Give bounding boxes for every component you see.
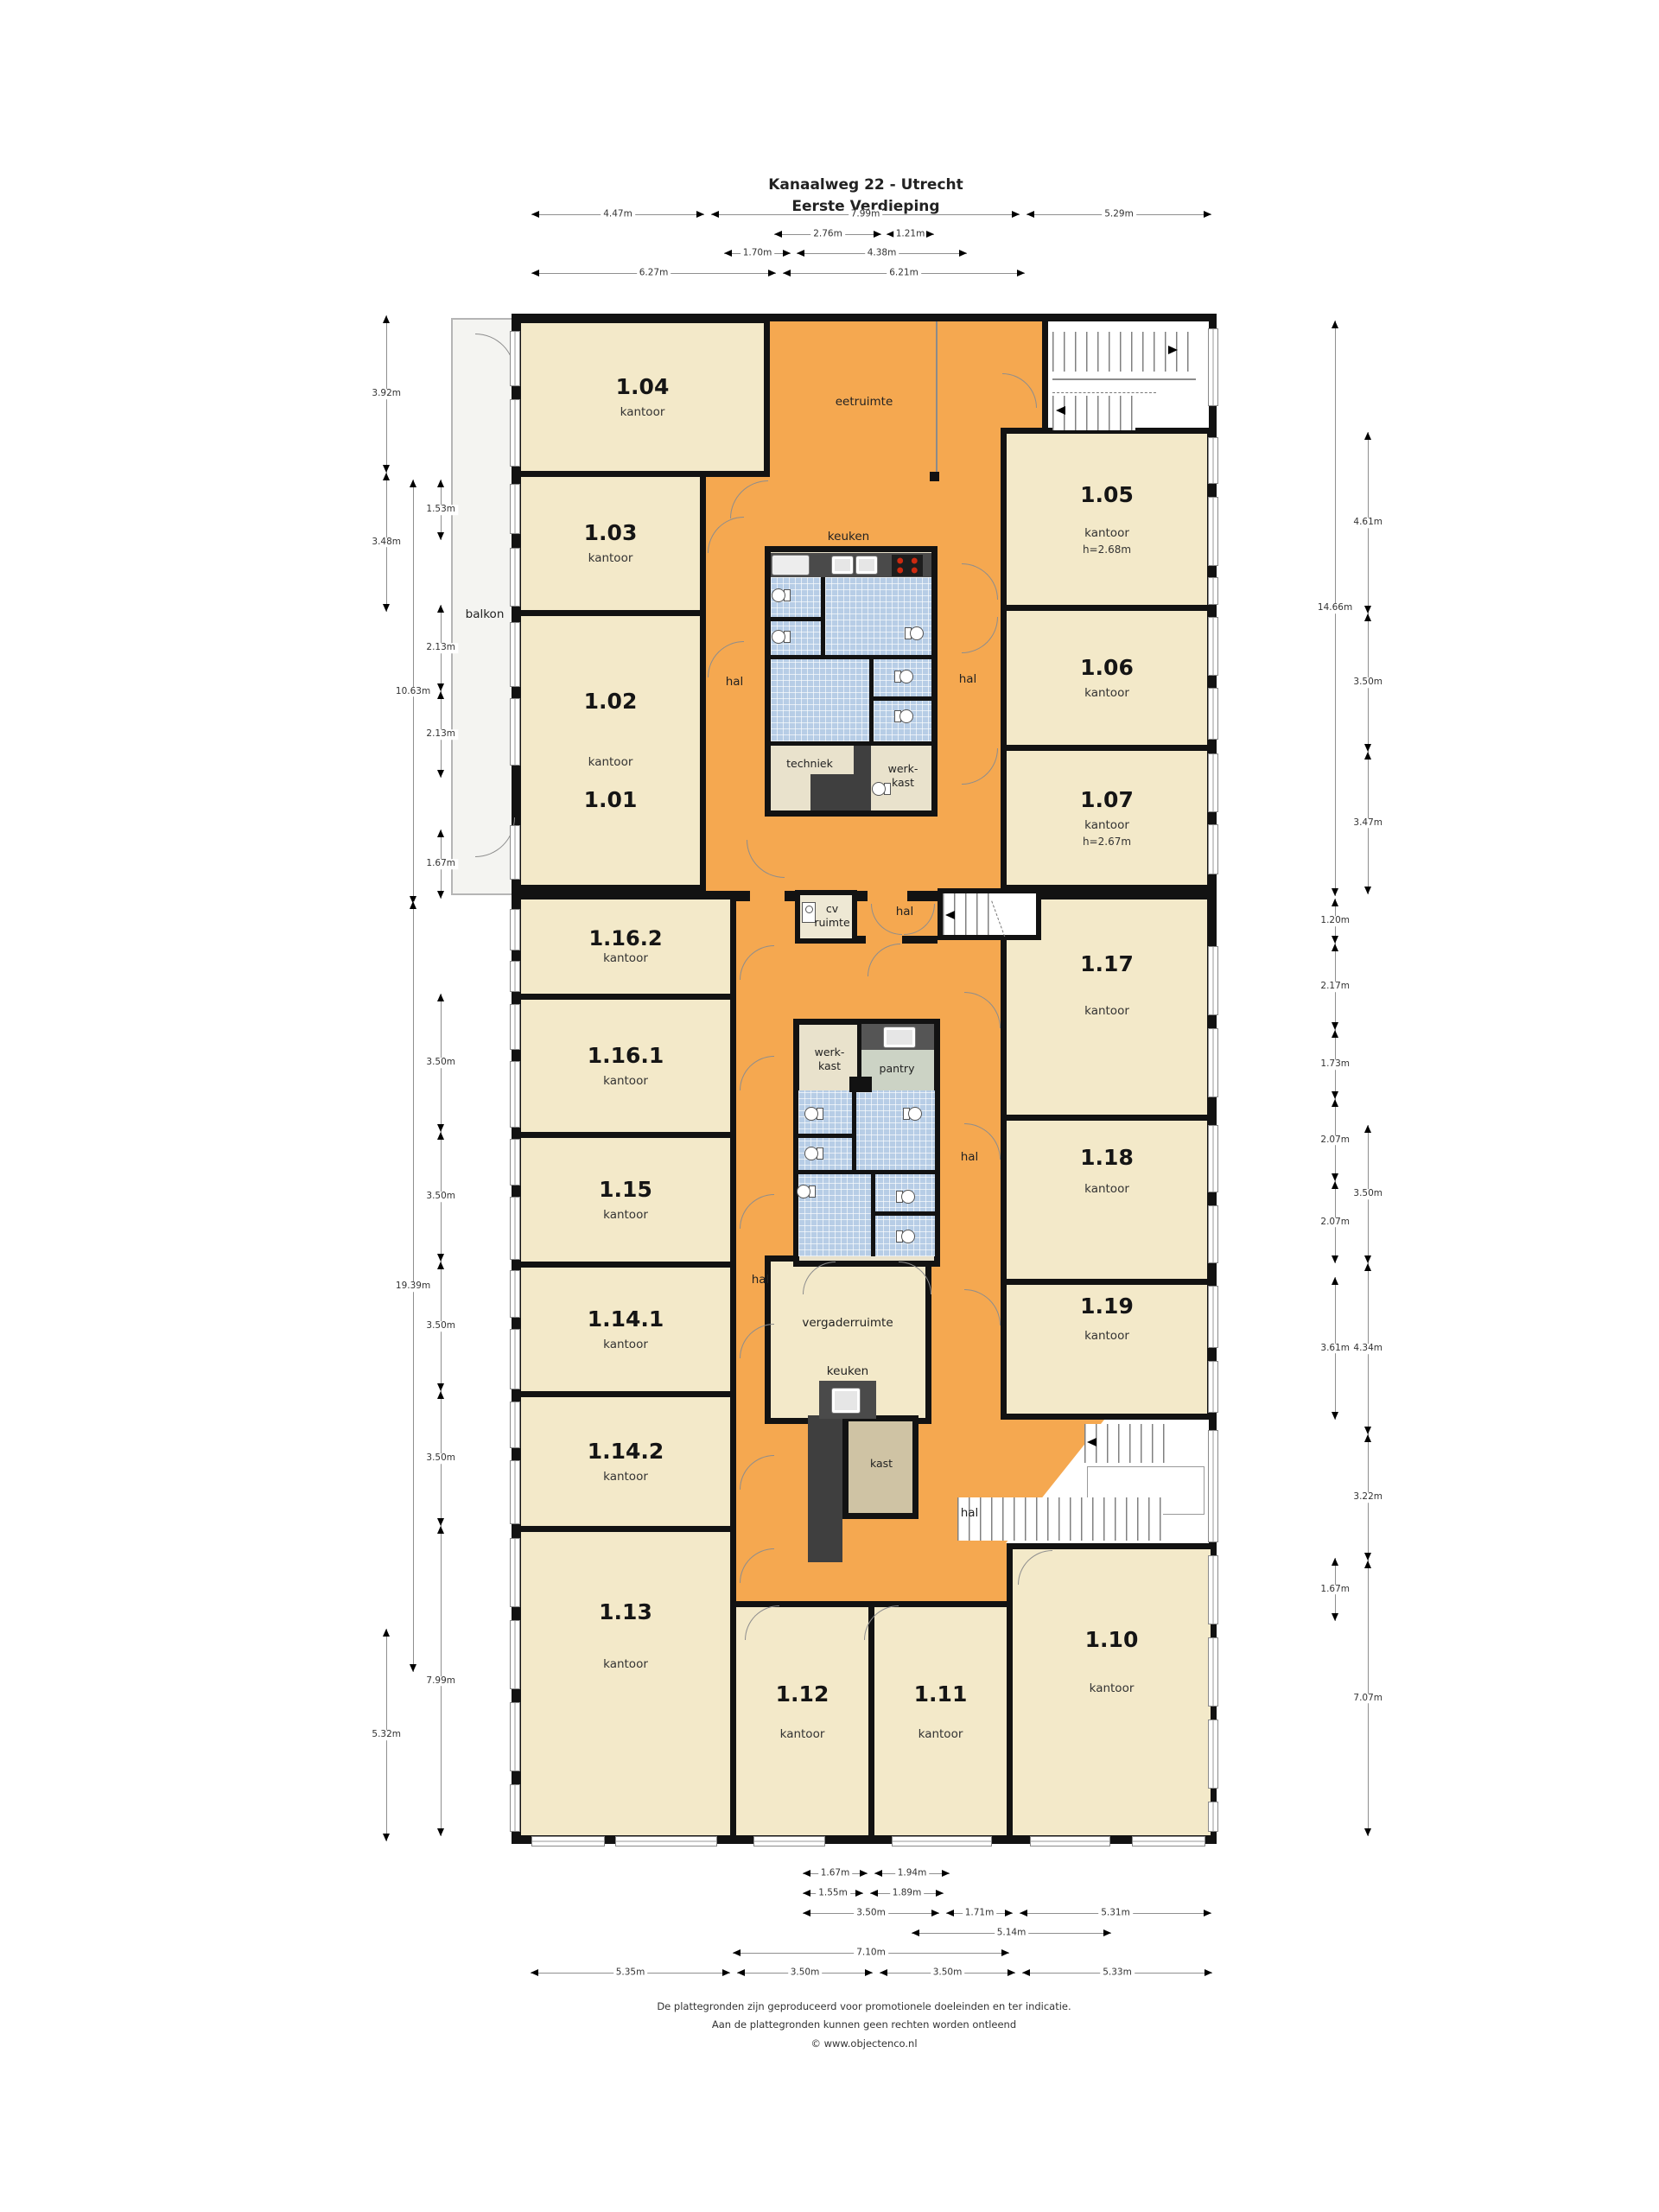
kitchen-sink-lower: [831, 1388, 861, 1414]
room-1-07: 1.07 kantoor h=2.67m: [1001, 745, 1213, 891]
wc-partition: [798, 1134, 852, 1138]
dimension: 3.61m: [1335, 1277, 1336, 1420]
room-type: kantoor: [1084, 820, 1129, 832]
dimension: 3.92m: [386, 315, 387, 473]
dimension-label: 3.50m: [423, 1058, 458, 1068]
room-number: 1.06: [1080, 657, 1134, 678]
dimension: 6.27m: [531, 273, 776, 274]
hal-label-upper-right: hal: [959, 672, 977, 688]
room-number: 1.13: [599, 1601, 652, 1623]
room-type: kantoor: [1084, 1184, 1129, 1196]
keuken-label-upper: keuken: [828, 530, 869, 545]
room-type: kantoor: [603, 953, 648, 965]
room-type: kantoor: [1084, 688, 1129, 700]
stair-flight: [1052, 396, 1135, 430]
dimension-label: 10.63m: [393, 687, 433, 697]
room-1-10: 1.10 kantoor: [1007, 1543, 1217, 1841]
techniek-equipment: [810, 774, 854, 810]
dimension-label: 1.89m: [890, 1889, 925, 1899]
disclaimer-line2: Aan de plattegronden kunnen geen rechten…: [657, 2016, 1071, 2034]
dimension-label: 3.61m: [1318, 1344, 1352, 1354]
plan-title-line1: Kanaalweg 22 - Utrecht: [768, 175, 963, 196]
dimension-label: 2.76m: [810, 230, 845, 240]
room-type: kantoor: [1084, 1331, 1129, 1343]
dimension: 1.21m: [887, 234, 934, 235]
passage-left: [750, 878, 785, 904]
dimension-label: 1.70m: [741, 249, 775, 259]
dimension-label: 1.21m: [893, 230, 928, 240]
werkkast-line1: werk-: [888, 762, 918, 775]
dimension: 14.66m: [1335, 321, 1336, 896]
dimension-label: 5.33m: [1100, 1968, 1135, 1979]
dimension-label: 2.17m: [1318, 982, 1352, 992]
wc-tiles-upper: [771, 577, 931, 741]
room-type: kantoor: [1084, 528, 1129, 540]
dimension-label: 4.34m: [1351, 1344, 1385, 1354]
wc-partition: [771, 655, 931, 659]
room-1-16-1: 1.16.1 kantoor: [515, 994, 736, 1138]
werkkast-line2: kast: [892, 776, 914, 789]
floorplan-page: Kanaalweg 22 - Utrecht Eerste Verdieping…: [0, 0, 1659, 2212]
room-type: kantoor: [918, 1729, 963, 1741]
dimension: 4.47m: [531, 214, 704, 215]
dimension: 2.76m: [774, 234, 881, 235]
dimension: 10.63m: [413, 480, 414, 904]
room-1-03: 1.03 kantoor: [515, 471, 706, 616]
cv-line2: ruimte: [814, 916, 849, 929]
dimension: 7.10m: [733, 1953, 1009, 1954]
dimension: 19.39m: [413, 901, 414, 1672]
dimension: 1.67m: [803, 1873, 868, 1874]
dimension-label: 5.31m: [1098, 1909, 1133, 1919]
stair-flight: [943, 893, 993, 935]
room-height-note: h=2.68m: [1083, 544, 1131, 555]
room-number: 1.05: [1080, 484, 1134, 505]
dimension-label: 3.47m: [1351, 818, 1385, 829]
dimension-label: 4.47m: [601, 210, 635, 220]
stair-flight: [1052, 332, 1196, 372]
werkkast-label-lower: werk-kast: [815, 1046, 845, 1074]
dimension-label: 3.48m: [369, 537, 404, 548]
dimension: 1.67m: [441, 829, 442, 899]
room-type: kantoor: [780, 1729, 825, 1741]
dimension: 5.31m: [1020, 1913, 1211, 1914]
kitchen-cabinet: [772, 555, 810, 575]
dimension: 1.55m: [803, 1893, 863, 1894]
room-type: kantoor: [603, 1659, 648, 1671]
dimension: 3.50m: [1368, 613, 1369, 752]
wc-partition: [873, 696, 931, 701]
dimension: 5.35m: [531, 1973, 730, 1974]
werkkast-line2: kast: [818, 1059, 841, 1072]
room-type: kantoor: [1084, 1006, 1129, 1018]
dimension: 3.50m: [441, 1391, 442, 1526]
room-type: kantoor: [588, 757, 633, 769]
dimension-label: 5.32m: [369, 1730, 404, 1740]
room-1-04: 1.04 kantoor: [515, 317, 770, 477]
kitchen-sink: [831, 556, 854, 575]
dimension-label: 7.99m: [423, 1676, 458, 1687]
kitchen-sink: [855, 556, 878, 575]
eetruimte-partition: [936, 321, 938, 477]
dimension: 3.48m: [386, 473, 387, 612]
cv-line1: cv: [826, 902, 838, 915]
room-number: 1.02: [584, 690, 638, 712]
balkon-area: [451, 318, 520, 895]
dimension: 3.50m: [1368, 1125, 1369, 1263]
room-1-13: 1.13 kantoor: [515, 1526, 736, 1841]
dimension-label: 14.66m: [1315, 603, 1355, 613]
wc-partition: [771, 617, 821, 621]
room-1-15: 1.15 kantoor: [515, 1132, 736, 1268]
room-number: 1.11: [914, 1683, 968, 1705]
room-type: kantoor: [603, 1339, 648, 1351]
dimension: 1.53m: [441, 480, 442, 540]
core-wall: [854, 746, 871, 810]
dimension-label: 4.38m: [865, 249, 899, 259]
dimension: 5.29m: [1027, 214, 1211, 215]
core-wall: [808, 1415, 842, 1562]
dimension-label: 3.50m: [1351, 677, 1385, 688]
cv-ruimte-label: cvruimte: [814, 902, 849, 931]
room-1-19: 1.19 kantoor: [1001, 1279, 1213, 1420]
dimension: 2.17m: [1335, 944, 1336, 1030]
room-number: 1.07: [1080, 789, 1134, 810]
dimension: 5.32m: [386, 1629, 387, 1841]
stair-dashed-line: [1052, 382, 1156, 393]
dimension-label: 3.22m: [1351, 1492, 1385, 1503]
hal-label-middle: hal: [961, 1150, 979, 1166]
junction-door-gap: [866, 936, 902, 944]
disclaimer-line1: De plattegronden zijn geproduceerd voor …: [657, 1998, 1071, 2016]
dimension-label: 5.14m: [995, 1929, 1029, 1939]
techniek-label: techniek: [786, 757, 833, 771]
stair-landing-edge: [1052, 378, 1196, 380]
plan-title-line2: Eerste Verdieping: [768, 196, 963, 218]
passage-right: [868, 878, 907, 904]
room-height-note: h=2.67m: [1083, 836, 1131, 847]
dimension-label: 2.07m: [1318, 1217, 1352, 1228]
hal-label-junction: hal: [896, 905, 914, 920]
dimension-label: 3.50m: [931, 1968, 965, 1979]
room-number: 1.16.1: [588, 1045, 664, 1066]
dimension-label: 3.50m: [423, 1192, 458, 1202]
wc-partition: [852, 1090, 856, 1173]
dimension: 3.50m: [737, 1973, 873, 1974]
kast-label: kast: [870, 1457, 893, 1471]
dimension: 1.73m: [1335, 1030, 1336, 1099]
stair-flight: [1084, 1424, 1171, 1463]
room-type: kantoor: [588, 553, 633, 565]
dimension-label: 3.50m: [788, 1968, 823, 1979]
dimension-label: 3.50m: [854, 1909, 888, 1919]
room-number: 1.04: [616, 376, 670, 397]
room-1-16-2: 1.16.2 kantoor: [515, 893, 736, 1000]
room-type: kantoor: [1090, 1683, 1135, 1695]
dimension-label: 6.27m: [637, 269, 671, 279]
dimension-label: 1.67m: [818, 1869, 853, 1879]
dimension-label: 1.20m: [1318, 916, 1352, 926]
dimension-label: 4.61m: [1351, 518, 1385, 528]
dimension: 3.22m: [1368, 1434, 1369, 1560]
room-number: 1.01: [584, 789, 638, 810]
dimension: 5.33m: [1022, 1973, 1212, 1974]
dimension-label: 1.71m: [963, 1909, 997, 1919]
dimension: 1.89m: [870, 1893, 944, 1894]
room-number: 1.10: [1085, 1629, 1139, 1650]
room-type: kantoor: [620, 407, 665, 419]
dimension: 3.50m: [441, 1262, 442, 1391]
copyright: © www.objectenco.nl: [657, 2035, 1071, 2053]
dimension: 1.94m: [874, 1873, 950, 1874]
dimension-label: 1.94m: [895, 1869, 930, 1879]
room-number: 1.15: [599, 1179, 652, 1200]
dimension-label: 1.55m: [816, 1889, 850, 1899]
dimension: 2.07m: [1335, 1181, 1336, 1263]
dimension: 5.14m: [912, 1933, 1111, 1934]
dimension-label: 5.29m: [1102, 210, 1136, 220]
dimension: 2.13m: [441, 605, 442, 691]
dimension: 3.50m: [880, 1973, 1015, 1974]
dimension: 7.99m: [441, 1526, 442, 1836]
dimension-label: 3.50m: [1351, 1189, 1385, 1199]
partition-post: [930, 472, 939, 481]
wc-partition: [771, 741, 931, 746]
room-1-12: 1.12 kantoor: [730, 1601, 874, 1841]
room-type: kantoor: [603, 1076, 648, 1088]
room-type: kantoor: [603, 1471, 648, 1484]
dimension-label: 5.35m: [613, 1968, 648, 1979]
disclaimer: De plattegronden zijn geproduceerd voor …: [657, 1998, 1071, 2053]
room-number: 1.14.1: [588, 1308, 664, 1330]
dimension: 3.47m: [1368, 752, 1369, 894]
wc-partition: [821, 577, 825, 657]
balkon-label: balkon: [466, 607, 505, 623]
dimension: 2.07m: [1335, 1099, 1336, 1181]
dimension: 3.50m: [441, 1132, 442, 1262]
room-number: 1.19: [1080, 1295, 1134, 1317]
room-type: kantoor: [603, 1210, 648, 1222]
room-1-14-1: 1.14.1 kantoor: [515, 1262, 736, 1397]
wc-partition: [798, 1170, 935, 1174]
hal-label-diagonal: hal: [961, 1506, 979, 1522]
room-number: 1.18: [1080, 1147, 1134, 1168]
stair-flight: [957, 1497, 1163, 1541]
vergaderruimte-label: vergaderruimte: [802, 1316, 893, 1332]
dimension-label: 1.67m: [1318, 1585, 1352, 1595]
dimension: 6.21m: [783, 273, 1025, 274]
dimension: 2.13m: [441, 691, 442, 778]
room-number: 1.16.2: [588, 928, 662, 949]
dimension: 4.38m: [797, 253, 967, 254]
pantry-label: pantry: [880, 1062, 915, 1076]
dimension-label: 2.07m: [1318, 1135, 1352, 1146]
room-number: 1.17: [1080, 953, 1134, 975]
room-1-11: 1.11 kantoor: [868, 1601, 1013, 1841]
hal-label-left: hal: [752, 1273, 770, 1288]
dimension: 1.67m: [1335, 1558, 1336, 1621]
room-1-14-2: 1.14.2 kantoor: [515, 1391, 736, 1532]
dimension-label: 19.39m: [393, 1281, 433, 1292]
hal-label-upper-left: hal: [726, 675, 744, 690]
dimension-label: 6.21m: [887, 269, 921, 279]
dimension: 3.50m: [803, 1913, 939, 1914]
dimension: 1.70m: [724, 253, 791, 254]
dimension: 1.20m: [1335, 899, 1336, 944]
dimension-label: 1.73m: [1318, 1059, 1352, 1070]
room-1-05: 1.05 kantoor h=2.68m: [1001, 428, 1213, 611]
dimension-label: 3.92m: [369, 389, 404, 399]
plan-title: Kanaalweg 22 - Utrecht Eerste Verdieping: [768, 175, 963, 217]
dimension: 3.50m: [441, 994, 442, 1132]
wc-partition: [874, 1211, 935, 1216]
dimension: 7.07m: [1368, 1560, 1369, 1836]
room-number: 1.14.2: [588, 1440, 664, 1462]
dimension-label: 7.07m: [1351, 1694, 1385, 1704]
werkkast-label-upper: werk-kast: [888, 762, 918, 791]
room-1-06: 1.06 kantoor: [1001, 605, 1213, 751]
room-1-18: 1.18 kantoor: [1001, 1115, 1213, 1285]
cooktop-icon: [892, 555, 923, 576]
dimension-label: 3.50m: [423, 1321, 458, 1332]
dimension-label: 3.50m: [423, 1453, 458, 1464]
eetruimte-label: eetruimte: [836, 395, 893, 410]
werkkast-line1: werk-: [815, 1046, 845, 1058]
dimension: 1.71m: [946, 1913, 1013, 1914]
dimension-label: 7.10m: [854, 1948, 888, 1959]
dimension: 4.61m: [1368, 432, 1369, 613]
dimension: 4.34m: [1368, 1263, 1369, 1434]
room-number: 1.03: [584, 522, 638, 543]
keuken-label-lower: keuken: [827, 1364, 868, 1380]
room-number: 1.12: [776, 1683, 829, 1705]
pantry-sink: [883, 1027, 916, 1048]
room-1-02-1-01: 1.02 kantoor 1.01: [515, 610, 706, 891]
